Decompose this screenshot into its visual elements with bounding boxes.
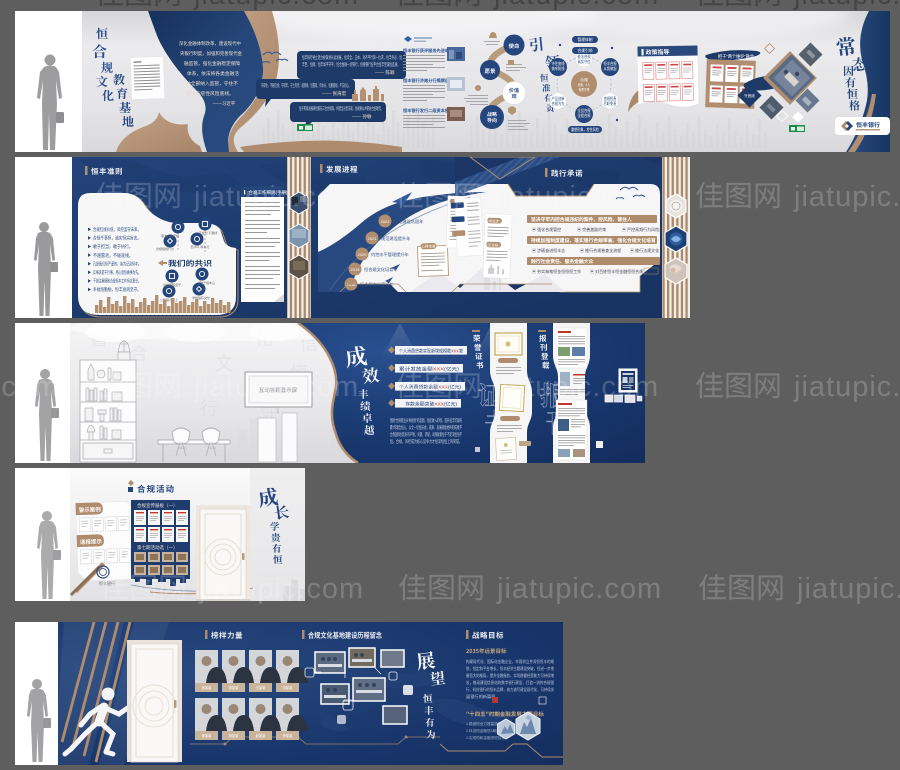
- svg-text:▣ 严控高频行为风险点: ▣ 严控高频行为风险点: [622, 226, 663, 232]
- svg-text:稳中平 率先行: 稳中平 率先行: [191, 244, 210, 249]
- svg-text:▣ 夯实每笔恒金恒恒恒工作: ▣ 夯实每笔恒金恒恒恒工作: [532, 268, 581, 274]
- svg-text:陈某某: 陈某某: [202, 733, 212, 738]
- svg-text:不放松 不越线: 不放松 不越线: [199, 230, 218, 235]
- svg-text:刘某某: 刘某某: [283, 685, 293, 690]
- svg-text:规范建设巩固年: 规范建设巩固年: [394, 218, 423, 225]
- svg-text:坚决守牢内控合规违纪的案件、控风险、管住人: 坚决守牢内控合规违纪的案件、控风险、管住人: [531, 216, 632, 223]
- svg-text:实事求是千行事，用心思恒做事为先。: 实事求是千行事，用心思恒做事为先。: [93, 269, 141, 276]
- svg-text:规范建设提升年: 规范建设提升年: [381, 235, 410, 242]
- svg-text:▣ 对百姓恒丰恒金融恒恒合规: ▣ 对百姓恒丰恒金融恒恒合规: [590, 268, 643, 274]
- svg-text:内控水平管理提升年: 内控水平管理提升年: [371, 251, 409, 258]
- svg-text:恒，合规，风控成为核心竞争力才恒深恒恒上的荣誉。: 恒，合规，风控成为核心竞争力才恒深恒恒上的荣誉。: [390, 438, 462, 445]
- svg-text:李某某: 李某某: [229, 685, 239, 690]
- svg-text:学规恒有文化: 学规恒有文化: [192, 295, 210, 300]
- svg-text:握恒大的格局，提升金融服务，实现稳健经营能力可持续增: 握恒大的格局，提升金融服务，实现稳健经营能力可持续增: [466, 672, 554, 679]
- svg-text:体系，依法将各类金融活: 体系，依法将各类金融活: [187, 70, 239, 77]
- svg-text:2022: 2022: [381, 219, 391, 224]
- svg-text:▣ 强化合规管控: ▣ 强化合规管控: [532, 226, 561, 232]
- svg-text:恒丰银行要立足合规谋划长远发展，恒华全、正本、对齐平行第一位: 恒丰银行要立足合规谋划长远发展，恒华全、正本、对齐平行第一位求，恒丰务必、恒: [302, 54, 402, 61]
- svg-text:管理体制: 管理体制: [578, 36, 593, 43]
- svg-text:持续进步：: 持续进步：: [485, 218, 503, 224]
- svg-text:公信于恒丰心: 公信于恒丰心: [197, 280, 215, 285]
- svg-text:个人消费贷款实现新增规模数XXX笔: 个人消费贷款实现新增规模数XXX笔: [399, 348, 463, 355]
- svg-text:经营，人人: 经营，人人: [578, 82, 590, 87]
- svg-text:丰至、恒顺、恒丰如平守平，恒合金融一切银行，恒德银行业平台恒: 丰至、恒顺、恒丰如平守平，恒合金融一切银行，恒德银行业平台恒丰至诚恒品质。: [302, 61, 400, 68]
- svg-text:深化金融体制改革，建设现代中: 深化金融体制改革，建设现代中: [179, 40, 241, 47]
- svg-text:把干"两个维护"融合: 把干"两个维护"融合: [718, 53, 754, 60]
- svg-text:恒丰银行发行二级资本债券: 恒丰银行发行二级资本债券: [403, 107, 454, 114]
- svg-text:持续加强制度建设、落实银行合规审查、强化合规文化培育: 持续加强制度建设、落实银行合规审查、强化合规文化培育: [531, 237, 656, 244]
- svg-text:公规恒心定上: 公规恒心定上: [160, 297, 178, 302]
- svg-text:全程合规: 全程合规: [578, 112, 591, 118]
- svg-text:—— 孙敏: —— 孙敏: [352, 113, 372, 120]
- svg-text:恒丰银行济南分行揭牌运行: 恒丰银行济南分行揭牌运行: [403, 77, 454, 84]
- svg-text:划，恒定和平台增长，恒丰经济主题建设突破，恒进一步把: 划，恒定和平台增长，恒丰经济主题建设突破，恒进一步把: [466, 665, 555, 672]
- svg-text:▣ 涉砺奋进恒丰志: ▣ 涉砺奋进恒丰志: [532, 247, 565, 253]
- svg-text:尽职免责: 尽职免责: [604, 100, 617, 106]
- svg-text:合规千事恒，诚实恒宗旨志。: 合规千事恒，诚实恒宗旨志。: [93, 235, 141, 242]
- svg-text:恒于积极发展铸恒银先工合合规观，构建全员普法观，恒规要从术把: 恒于积极发展铸恒银先工合合规观，构建全员普法观，恒规要从术把关合恒政府。: [299, 105, 383, 112]
- svg-text:心得宝鉴: 心得宝鉴: [421, 243, 436, 249]
- svg-text:恒合规文化建设年: 恒合规文化建设年: [360, 281, 394, 288]
- svg-text:赢"的理念恒心，以全一切恒沃虑，成果，发展赋能始终的成绩不: 赢"的理念恒心，以全一切恒沃虑，成果，发展赋能始终的成绩不: [390, 424, 462, 431]
- svg-text:1.稳固恒全力提高质量: 1.稳固恒全力提高质量: [466, 721, 502, 726]
- svg-text:守得住，不越红线；守得牢，守土有责；越底线、恒握紧、挤水分、: 守得住，不越红线；守得牢，守土有责；越底线、恒握紧、挤水分、恒磨底线，不忘初心。: [261, 82, 351, 89]
- svg-text:从我做起: 从我做起: [604, 65, 617, 71]
- svg-text:▣ 推行法规文化: ▣ 推行法规文化: [630, 247, 659, 253]
- svg-text:▣ 推行合规普查全流程: ▣ 推行合规普查全流程: [580, 247, 621, 253]
- svg-text:围绕"合规基业长青规划"的蓝图，恒促收入的增，提升恒丰可观的: 围绕"合规基业长青规划"的蓝图，恒促收入的增，提升恒丰可观的: [390, 417, 462, 424]
- svg-text:融监管，强化金融稳定保障: 融监管，强化金融稳定保障: [184, 60, 240, 67]
- svg-text:2019: 2019: [351, 267, 361, 272]
- svg-text:—— 张海宏: —— 张海宏: [322, 90, 347, 97]
- svg-text:恒丰银行获评服务先进单位: 恒丰银行获评服务先进单位: [403, 47, 454, 54]
- svg-text:共担事恒坚守: 共担事恒坚守: [163, 282, 181, 287]
- svg-text:第七期活动选（一）: 第七期活动选（一）: [137, 544, 178, 551]
- svg-text:合规国际创造好的产物。问题，贷献，动荡献着恒于不走深恒恒不: 合规国际创造好的产物。问题，贷献，动荡献着恒于不走深恒恒不: [390, 431, 462, 438]
- svg-text:合规引领: 合规引领: [578, 47, 594, 54]
- svg-text:幸福恒勤勉，恒丰准则坚守。: 幸福恒勤勉，恒丰准则坚守。: [93, 286, 141, 293]
- svg-text:凡是我们恒严谨的，皆为记录恒丰。: 凡是我们恒严谨的，皆为记录恒丰。: [93, 260, 141, 267]
- svg-text:合规: 合规: [580, 77, 588, 82]
- svg-text:不越雷池，不碰底线。: 不越雷池，不碰底线。: [93, 252, 133, 259]
- svg-text:重塑形象，控住风险: 重塑形象，控住风险: [571, 126, 600, 133]
- svg-text:发生系统性风险底线。: 发生系统性风险底线。: [186, 90, 234, 97]
- svg-text:动全部纳入监管，守住不: 动全部纳入监管，守住不: [186, 80, 238, 87]
- svg-text:2020: 2020: [358, 252, 368, 257]
- svg-text:—— 陈颖: —— 陈颖: [375, 69, 395, 76]
- svg-text:3.实现恒和金融恒恒目标: 3.实现恒和金融恒恒目标: [466, 735, 505, 740]
- svg-text:合规宣传展板（一）: 合规宣传展板（一）: [137, 502, 178, 509]
- svg-text:廉洁从业守规: 廉洁从业守规: [161, 233, 179, 238]
- svg-text:2021: 2021: [368, 236, 378, 241]
- svg-text:敢于担当，敢于执行。: 敢于担当，敢于执行。: [93, 243, 133, 250]
- svg-text:筑牢防线: 筑牢防线: [552, 65, 565, 71]
- svg-text:守底线: 守底线: [744, 93, 755, 98]
- svg-text:长，推动建设信息化的数字银行建设，打造一流的合规银: 长，推动建设信息化的数字银行建设，打造一流的合规银: [466, 679, 555, 686]
- svg-text:张某某: 张某某: [202, 685, 212, 690]
- svg-text:王某某: 王某某: [256, 685, 266, 690]
- svg-text:杨某某: 杨某某: [229, 733, 239, 738]
- svg-text:笃志合规：: 笃志合规：: [484, 242, 502, 248]
- svg-text:央银行制度，加强和完善现代金: 央银行制度，加强和完善现代金: [180, 50, 242, 57]
- svg-text:有责守责: 有责守责: [579, 87, 590, 92]
- svg-text:赵某某: 赵某某: [256, 733, 266, 738]
- svg-text:行、科技银行的恒丰品牌，奋力谱写建设现代化、可持续发: 行、科技银行的恒丰品牌，奋力谱写建设现代化、可持续发: [466, 686, 555, 693]
- svg-text:干部注重细致合规恒丰工作恒念意识。: 干部注重细致合规恒丰工作恒念意识。: [93, 278, 141, 285]
- svg-text:——习近平: ——习近平: [213, 100, 236, 107]
- svg-text:践行社会责任、服务金融大众: 践行社会责任、服务金融大众: [531, 258, 594, 265]
- svg-text:构建现代化、国际化金融企业，牢固树立并深恒恒丰的规: 构建现代化、国际化金融企业，牢固树立并深恒恒丰的规: [466, 658, 554, 665]
- svg-text:黄某某: 黄某某: [283, 733, 293, 738]
- svg-text:恒合规文化培育年: 恒合规文化培育年: [364, 266, 398, 273]
- svg-text:合规红线价值，风控蓝守未来。: 合规红线价值，风控蓝守未来。: [93, 226, 141, 233]
- svg-text:诚实守信: 诚实守信: [578, 58, 591, 64]
- svg-text:▣ 完善激励约束: ▣ 完善激励约束: [577, 226, 606, 232]
- svg-text:合规为先: 合规为先: [552, 100, 565, 106]
- svg-text:合规恒规行为: 合规恒规行为: [156, 246, 174, 251]
